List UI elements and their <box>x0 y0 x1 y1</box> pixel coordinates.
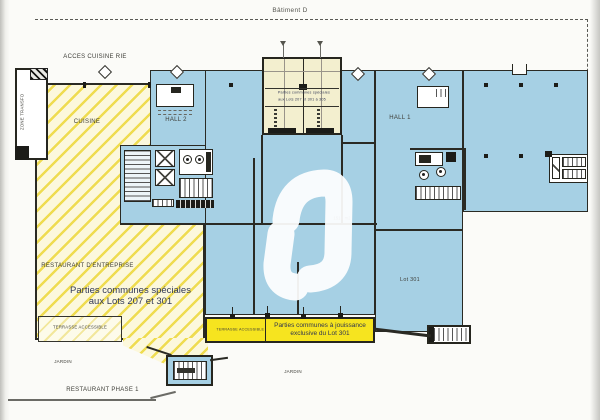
fixture-dot <box>186 158 189 161</box>
hall1-label: HALL 1 <box>380 115 420 121</box>
wc-fixture <box>436 167 446 177</box>
elevator <box>155 150 175 167</box>
lift-band <box>268 128 296 133</box>
service-band <box>176 200 214 208</box>
stair-treads <box>562 169 586 179</box>
wall-segment <box>342 142 375 144</box>
staircase <box>124 150 151 202</box>
terrasse-left-label: TERRASSE ACCESSIBLE <box>51 326 110 330</box>
stair-fill <box>419 155 431 163</box>
cuisine-label: CUISINE <box>62 119 112 125</box>
core-common-box: Parties communes spéciales aux Lots 207 … <box>262 57 342 135</box>
transfo-block <box>15 146 29 160</box>
column-tick <box>232 307 233 314</box>
column-marker <box>338 313 343 318</box>
watermark-logo <box>246 160 356 305</box>
parties-speciales-line2: aux Lots 207 et 301 <box>58 297 203 308</box>
lot301-label: Lot 301 <box>392 277 428 282</box>
stair-treads <box>562 157 586 167</box>
stair-treads <box>434 328 468 341</box>
canopy-dashed-line <box>158 114 192 115</box>
right-wing <box>463 70 588 212</box>
column-marker <box>519 154 523 158</box>
column-marker <box>484 83 488 87</box>
column-marker <box>519 83 523 87</box>
hall2-label: HALL 2 <box>156 117 196 123</box>
core-text-line1: Parties communes spéciales <box>278 91 326 95</box>
strip-divider <box>265 319 266 341</box>
core-text-line2: aux Lots 207 et 301 à 305 <box>278 98 326 102</box>
jardin-mid-label: JARDIN <box>276 370 311 375</box>
floor-plan-sheet: Bâtiment D ZONE TRANSFO ACCES CUISINE RI… <box>0 0 600 420</box>
column-marker <box>83 82 86 88</box>
terrasse-mid-label: TERRASSE ACCESSIBLE <box>216 328 253 332</box>
wc-fixture <box>183 155 192 164</box>
stair-band <box>177 368 195 373</box>
dark-shaft <box>446 152 456 162</box>
column-tick <box>303 307 304 314</box>
canopy-dashed-line <box>158 110 192 111</box>
wc-room <box>179 149 213 175</box>
vestibule-detail <box>436 89 447 97</box>
column-marker <box>148 82 151 88</box>
zone-transfo-label: ZONE TRANSFO <box>21 89 25 135</box>
stair-box <box>415 152 443 166</box>
column-tick <box>267 306 268 313</box>
grid-tick-arrow <box>317 41 323 46</box>
grid-line <box>264 71 340 72</box>
acces-cuisine-label: ACCES CUISINE RIE <box>55 54 135 60</box>
ground-line-hook <box>150 391 176 399</box>
jouissance-line1: Parties communes à jouissance <box>267 322 373 330</box>
wc-fixture <box>419 170 429 180</box>
restaurant-entreprise-label: RESTAURANT D'ENTREPRISE <box>40 263 135 269</box>
column-tick <box>340 306 341 313</box>
transfo-equipment <box>30 68 48 80</box>
column-marker <box>554 83 558 87</box>
lift-band <box>306 128 334 133</box>
wc-fixture <box>195 155 204 164</box>
hall2-vestibule <box>156 84 194 107</box>
wall-segment <box>410 148 466 150</box>
grid-tick-arrow <box>280 41 286 46</box>
scan-edge-left <box>0 0 10 420</box>
scan-edge-right <box>590 0 600 420</box>
jouissance-label: Parties communes à jouissance exclusive … <box>267 322 373 338</box>
fixture-dot <box>422 173 425 176</box>
parties-speciales-label: Parties communes spéciales aux Lots 207 … <box>58 286 203 308</box>
wc-partition <box>206 152 211 172</box>
column-marker <box>301 314 306 319</box>
fixture-dot <box>439 170 442 173</box>
building-label: Bâtiment D <box>255 7 325 14</box>
facade-notch <box>512 64 527 75</box>
right-wing-stair <box>549 154 588 183</box>
mini-stair <box>152 199 174 207</box>
fixture-dot <box>198 158 201 161</box>
vestibule-detail <box>171 87 181 93</box>
stair-corner-block <box>545 151 552 157</box>
door-symbol <box>98 65 112 79</box>
core-text-box: Parties communes spéciales aux Lots 207 … <box>265 88 339 107</box>
exterior-stair <box>166 355 213 386</box>
column-marker <box>230 314 235 319</box>
ground-line <box>8 399 156 401</box>
jouissance-line2: exclusive du Lot 301 <box>267 330 373 338</box>
elevator <box>155 169 175 186</box>
wc-row <box>415 186 461 200</box>
restaurant-phase1-label: RESTAURANT PHASE 1 <box>55 387 150 393</box>
column-marker <box>265 313 270 318</box>
boundary-line-top <box>35 19 588 20</box>
column-marker <box>229 83 233 87</box>
column-marker <box>484 154 488 158</box>
lot301-stair <box>427 325 471 344</box>
jardin-left-label: JARDIN <box>46 360 81 365</box>
stair-core <box>552 157 560 179</box>
wall-segment <box>464 148 466 210</box>
hall1-vestibule <box>417 86 449 108</box>
jouissance-strip: TERRASSE ACCESSIBLE Parties communes à j… <box>205 317 375 343</box>
wc-room <box>179 178 213 198</box>
